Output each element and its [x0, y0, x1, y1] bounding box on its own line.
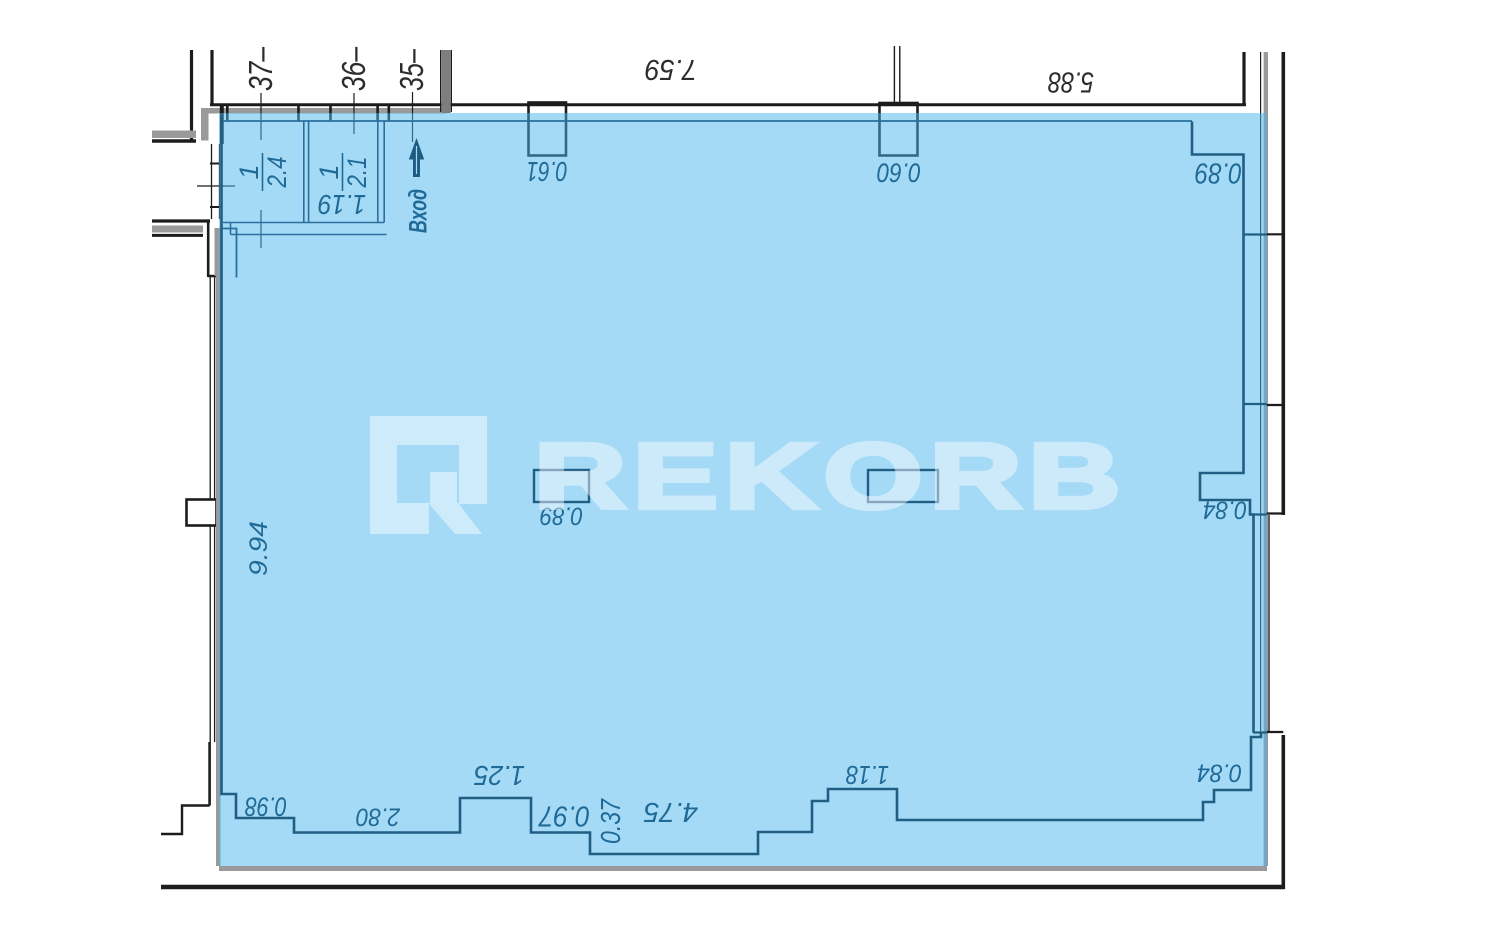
svg-text:0.97: 0.97 — [537, 800, 590, 832]
svg-text:1.19: 1.19 — [318, 189, 366, 220]
svg-text:Вход: Вход — [405, 189, 433, 233]
svg-text:4.75: 4.75 — [644, 797, 698, 828]
svg-text:5.88: 5.88 — [1048, 66, 1094, 98]
svg-text:0.84: 0.84 — [1197, 759, 1242, 787]
svg-text:1.18: 1.18 — [846, 760, 889, 790]
svg-text:35–: 35– — [393, 49, 430, 91]
svg-text:0.37: 0.37 — [595, 798, 626, 844]
svg-text:9.94: 9.94 — [245, 521, 273, 576]
svg-text:1: 1 — [234, 164, 264, 179]
svg-text:2.80: 2.80 — [356, 803, 401, 831]
svg-text:0.89: 0.89 — [1195, 157, 1242, 189]
svg-text:2.1: 2.1 — [342, 157, 372, 189]
svg-text:36–: 36– — [335, 46, 372, 91]
svg-text:1: 1 — [314, 164, 344, 179]
svg-text:0.60: 0.60 — [877, 158, 921, 188]
svg-text:0.98: 0.98 — [245, 792, 287, 822]
svg-text:2.4: 2.4 — [262, 157, 292, 189]
svg-text:37–: 37– — [242, 46, 279, 91]
svg-text:0.61: 0.61 — [527, 156, 568, 187]
svg-text:REKORB: REKORB — [534, 424, 1127, 528]
svg-text:1.25: 1.25 — [474, 760, 525, 791]
svg-text:0.84: 0.84 — [1203, 496, 1247, 524]
svg-text:7.59: 7.59 — [645, 53, 697, 85]
